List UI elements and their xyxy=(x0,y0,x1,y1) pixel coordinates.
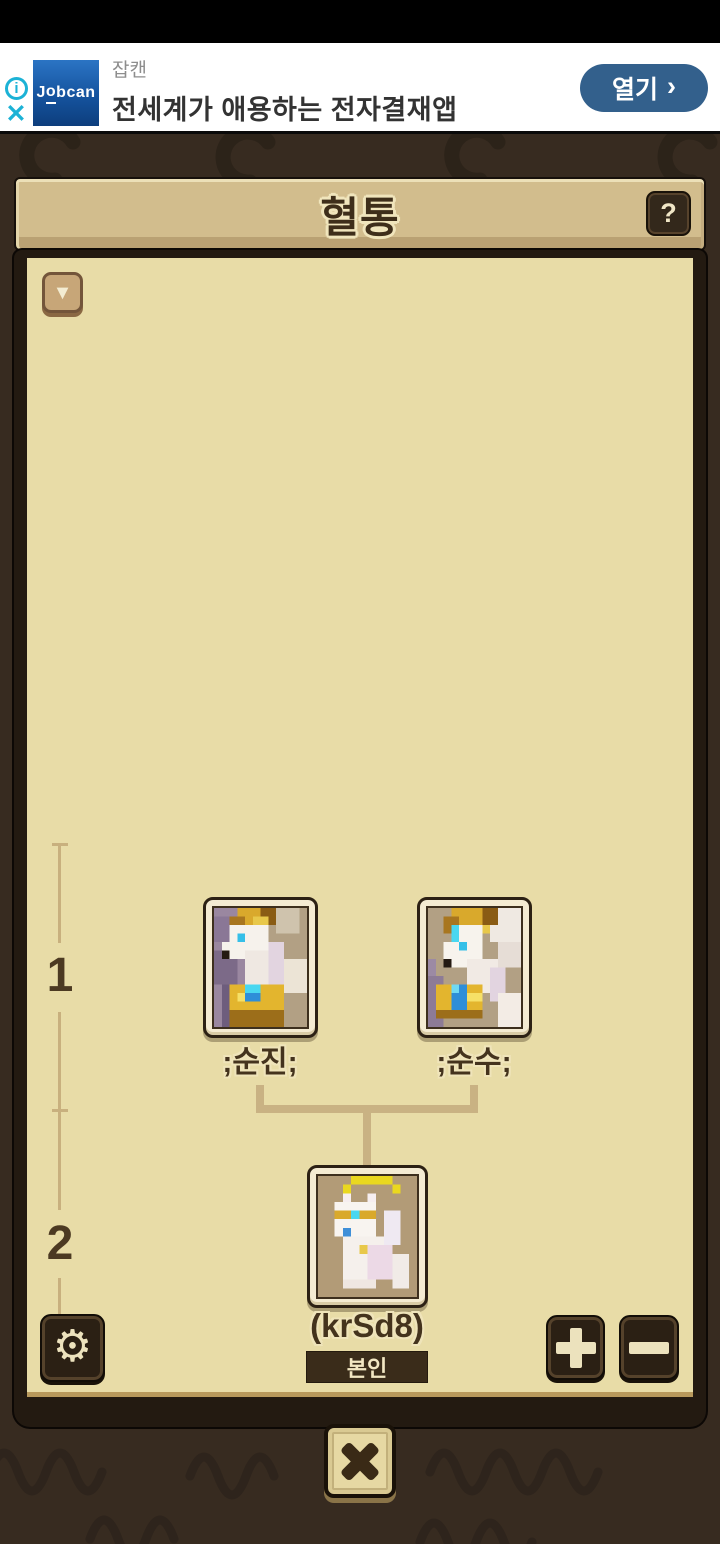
screen: i ✕ Jobcan 잡캔 전세계가 애용하는 전자결재앱 열기 › xyxy=(0,0,720,1544)
pet-card-self[interactable] xyxy=(307,1165,428,1308)
ad-banner: i ✕ Jobcan 잡캔 전세계가 애용하는 전자결재앱 열기 › xyxy=(0,43,720,131)
collapse-button[interactable]: ▼ xyxy=(42,272,83,313)
ad-advertiser: 잡캔 xyxy=(112,55,552,82)
ad-close-icon[interactable]: ✕ xyxy=(3,101,29,127)
ad-info-icon[interactable]: i xyxy=(5,77,28,100)
logo-text-rest: bcan xyxy=(56,84,95,102)
minus-icon xyxy=(629,1342,669,1354)
close-button[interactable] xyxy=(324,1424,396,1498)
zoom-out-button[interactable] xyxy=(619,1315,679,1380)
close-x-icon xyxy=(337,1438,383,1484)
gear-icon: ⚙ xyxy=(53,1325,92,1369)
pet-portrait-self xyxy=(316,1174,419,1299)
plus-icon xyxy=(556,1328,596,1368)
logo-text-o: o xyxy=(46,83,56,104)
ad-open-button[interactable]: 열기 › xyxy=(580,64,708,112)
ad-open-label: 열기 xyxy=(612,70,658,106)
pedigree-header: 혈통 ? xyxy=(14,177,706,251)
connector-stem xyxy=(363,1105,371,1165)
self-badge-label: 본인 xyxy=(347,1351,387,1383)
chevron-right-icon: › xyxy=(667,71,676,102)
page-title: 혈통 xyxy=(320,184,399,245)
ad-headline: 전세계가 애용하는 전자결재앱 xyxy=(112,88,552,127)
pedigree-panel: ▼ 1 2 xyxy=(14,250,706,1427)
jobcan-logo[interactable]: Jobcan xyxy=(33,60,99,126)
settings-button[interactable]: ⚙ xyxy=(40,1314,105,1382)
self-badge: 본인 xyxy=(307,1352,427,1382)
pet-name-self: (krSd8) xyxy=(280,1307,454,1345)
question-icon: ? xyxy=(660,198,677,229)
pet-portrait-parent-2 xyxy=(426,906,523,1029)
zoom-in-button[interactable] xyxy=(546,1315,605,1380)
pet-portrait-parent-1 xyxy=(212,906,309,1029)
rail-tick-mid xyxy=(52,1109,68,1112)
pet-name-parent-2: ;순수; xyxy=(387,1037,561,1081)
status-bar xyxy=(0,0,720,43)
pet-name-parent-1: ;순진; xyxy=(173,1037,347,1081)
pet-card-parent-1[interactable] xyxy=(203,897,318,1038)
chevron-down-icon: ▼ xyxy=(53,283,73,303)
help-button[interactable]: ? xyxy=(646,191,691,236)
pet-card-parent-2[interactable] xyxy=(417,897,532,1038)
logo-text-j: J xyxy=(36,84,45,102)
generation-2-number: 2 xyxy=(30,1216,90,1271)
rail-segment-1 xyxy=(58,845,61,943)
ad-texts: 잡캔 전세계가 애용하는 전자결재앱 xyxy=(112,55,552,127)
generation-1-number: 1 xyxy=(30,948,90,1003)
